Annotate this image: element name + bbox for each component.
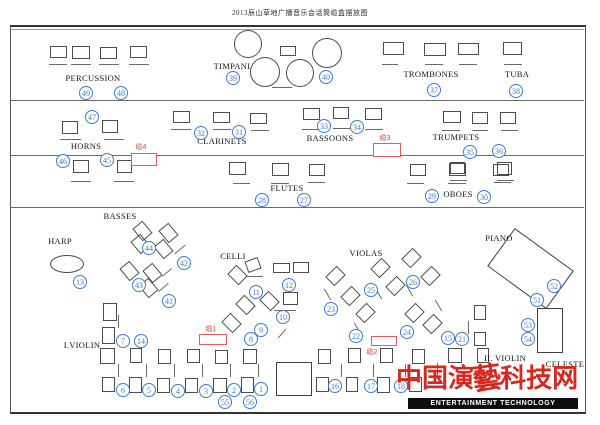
music-stand bbox=[104, 139, 124, 140]
chair bbox=[130, 348, 142, 363]
chair bbox=[158, 349, 171, 364]
chair bbox=[50, 46, 67, 58]
chair bbox=[503, 42, 522, 55]
logo-chinese-text: 中国演藝科技网 bbox=[396, 363, 584, 394]
mic-position-5: 5 bbox=[142, 383, 156, 397]
section-label-flutes: FLUTES bbox=[271, 183, 304, 193]
logo-char: 中 bbox=[396, 363, 422, 393]
section-label-i-violin: I.VIOLIN bbox=[64, 340, 101, 350]
music-stand bbox=[308, 182, 325, 183]
music-stand bbox=[258, 364, 259, 377]
mic-position-10: 10 bbox=[276, 310, 290, 324]
music-stand bbox=[60, 139, 81, 140]
mic-position-28: 28 bbox=[255, 193, 269, 207]
section-label-timpani: TIMPANI bbox=[214, 61, 251, 71]
cable-box-缆4 bbox=[131, 153, 157, 166]
mic-position-13: 13 bbox=[73, 275, 87, 289]
chair bbox=[365, 108, 382, 120]
chair bbox=[130, 46, 147, 58]
chair bbox=[449, 163, 466, 176]
section-label-horns: HORNS bbox=[71, 141, 101, 151]
section-label-basses: BASSES bbox=[104, 211, 137, 221]
chair bbox=[73, 160, 89, 173]
chair bbox=[213, 378, 227, 393]
logo-char: 科 bbox=[500, 363, 526, 393]
mic-position-44: 44 bbox=[142, 241, 156, 255]
chair bbox=[173, 111, 190, 123]
logo-char: 网 bbox=[552, 363, 578, 393]
cable-label-缆3: 缆3 bbox=[380, 133, 391, 143]
chair bbox=[185, 378, 198, 393]
mic-position-32: 32 bbox=[194, 126, 208, 140]
mic-position-6: 6 bbox=[116, 383, 130, 397]
mic-position-41: 41 bbox=[162, 294, 176, 308]
stage-row-divider bbox=[10, 207, 584, 208]
chair bbox=[472, 112, 488, 124]
mic-position-53: 53 bbox=[521, 318, 535, 332]
mic-position-21: 21 bbox=[455, 332, 469, 346]
mic-position-15: 15 bbox=[441, 331, 455, 345]
mic-position-36: 36 bbox=[492, 144, 506, 158]
section-label-violas: VIOLAS bbox=[350, 248, 383, 258]
music-stand bbox=[171, 129, 191, 130]
mic-position-27: 27 bbox=[297, 193, 311, 207]
music-stand bbox=[213, 129, 231, 130]
timpani-drum bbox=[286, 59, 314, 87]
music-stand bbox=[230, 364, 231, 377]
chair bbox=[303, 108, 320, 120]
section-label-trumpets: TRUMPETS bbox=[433, 132, 480, 142]
music-stand bbox=[459, 64, 477, 65]
chair bbox=[72, 46, 90, 59]
mic-position-52: 52 bbox=[547, 279, 561, 293]
mic-position-26: 26 bbox=[406, 275, 420, 289]
mic-position-23: 23 bbox=[324, 302, 338, 316]
mic-position-43: 43 bbox=[132, 278, 146, 292]
music-stand bbox=[472, 130, 488, 131]
conductor-podium bbox=[276, 362, 312, 396]
music-stand bbox=[425, 64, 443, 65]
mic-position-34: 34 bbox=[350, 120, 364, 134]
chair bbox=[474, 305, 486, 320]
section-label-celli: CELLI bbox=[220, 251, 246, 261]
chair bbox=[280, 46, 296, 56]
mic-position-16: 16 bbox=[328, 379, 342, 393]
chair bbox=[215, 350, 228, 364]
mic-position-37: 37 bbox=[427, 83, 441, 97]
chair bbox=[500, 112, 516, 124]
chair bbox=[62, 121, 78, 134]
chair bbox=[117, 160, 132, 173]
section-label-piano: PIANO bbox=[485, 233, 512, 243]
timpani-drum bbox=[312, 38, 342, 68]
mic-position-45: 45 bbox=[100, 153, 114, 167]
chair bbox=[103, 303, 117, 321]
section-label-trombones: TROMBONES bbox=[403, 69, 458, 79]
stage-row-divider bbox=[10, 100, 584, 101]
music-stand bbox=[118, 364, 119, 377]
chair bbox=[424, 43, 446, 56]
music-stand bbox=[407, 183, 424, 184]
music-stand bbox=[450, 180, 467, 181]
chair bbox=[241, 377, 254, 393]
mic-position-22: 22 bbox=[349, 329, 363, 343]
chair bbox=[102, 377, 115, 392]
music-stand bbox=[341, 364, 342, 377]
mic-position-46: 46 bbox=[56, 154, 70, 168]
stage-diagram: 2013辰山草地广播音乐会话筒缆盒摆放图 缆4缆3缆1缆2PERCUSSIONT… bbox=[0, 0, 600, 425]
music-stand bbox=[114, 181, 134, 182]
mic-position-30: 30 bbox=[477, 190, 491, 204]
chair bbox=[493, 164, 509, 176]
chair bbox=[187, 349, 200, 363]
mic-position-31: 31 bbox=[232, 125, 246, 139]
mic-position-25: 25 bbox=[364, 283, 378, 297]
music-stand bbox=[174, 364, 175, 377]
chair bbox=[102, 120, 118, 133]
mic-position-24: 24 bbox=[400, 325, 414, 339]
cable-box-缆1 bbox=[199, 334, 227, 345]
chair bbox=[102, 327, 115, 344]
music-stand bbox=[468, 321, 469, 334]
chair bbox=[293, 262, 309, 273]
chair bbox=[410, 164, 426, 176]
chair bbox=[100, 47, 117, 59]
chair bbox=[243, 349, 257, 364]
mic-position-40: 40 bbox=[319, 70, 333, 84]
chair bbox=[229, 162, 246, 175]
mic-position-35: 35 bbox=[463, 145, 477, 159]
chair bbox=[272, 163, 289, 176]
mic-position-7: 7 bbox=[116, 334, 130, 348]
chair bbox=[448, 348, 462, 363]
chair bbox=[377, 377, 390, 393]
mic-position-47: 47 bbox=[85, 110, 99, 124]
mic-position-12: 12 bbox=[282, 278, 296, 292]
chair bbox=[346, 377, 358, 392]
mic-position-54: 54 bbox=[521, 332, 535, 346]
music-stand bbox=[118, 315, 119, 328]
chair bbox=[443, 111, 461, 123]
cable-label-缆2: 缆2 bbox=[367, 347, 378, 357]
chair bbox=[309, 164, 325, 176]
music-stand bbox=[365, 129, 383, 130]
mic-position-2: 2 bbox=[227, 383, 241, 397]
chair bbox=[129, 377, 142, 393]
chair bbox=[283, 292, 298, 305]
diagram-title: 2013辰山草地广播音乐会话筒缆盒摆放图 bbox=[0, 8, 600, 18]
chair bbox=[380, 348, 393, 363]
mic-position-8: 8 bbox=[244, 332, 258, 346]
music-stand bbox=[251, 130, 269, 131]
music-stand bbox=[71, 64, 91, 65]
section-label-oboes: OBOES bbox=[443, 189, 472, 199]
music-stand bbox=[233, 183, 250, 184]
music-stand bbox=[146, 364, 147, 377]
music-stand bbox=[382, 64, 398, 65]
cable-label-缆1: 缆1 bbox=[206, 324, 217, 334]
mic-position-51: 51 bbox=[530, 293, 544, 307]
logo-char: 国 bbox=[422, 363, 448, 393]
section-label-tuba: TUBA bbox=[505, 69, 529, 79]
cable-label-缆4: 缆4 bbox=[136, 142, 147, 152]
music-stand bbox=[373, 364, 374, 377]
music-stand bbox=[272, 87, 292, 88]
chair bbox=[318, 349, 331, 364]
music-stand bbox=[247, 276, 263, 277]
chair bbox=[213, 112, 230, 123]
chair bbox=[458, 43, 479, 55]
chair bbox=[250, 113, 267, 124]
chair bbox=[383, 42, 404, 55]
music-stand bbox=[129, 64, 149, 65]
mic-position-55: 55 bbox=[218, 395, 232, 409]
harp-shape bbox=[50, 255, 84, 273]
timpani-drum bbox=[250, 57, 280, 87]
music-stand bbox=[71, 181, 91, 182]
mic-position-17: 17 bbox=[364, 379, 378, 393]
music-stand bbox=[442, 130, 460, 131]
music-stand bbox=[448, 183, 466, 184]
chair bbox=[412, 349, 425, 364]
music-stand bbox=[504, 64, 522, 65]
chair bbox=[157, 378, 170, 393]
chair bbox=[333, 107, 349, 119]
chair bbox=[100, 348, 115, 364]
section-label-harp: HARP bbox=[48, 236, 72, 246]
mic-position-29: 29 bbox=[425, 189, 439, 203]
music-stand bbox=[99, 64, 119, 65]
celeste-shape bbox=[537, 308, 563, 353]
music-stand bbox=[494, 182, 511, 183]
logo-char-fancy: 藝 bbox=[470, 359, 504, 398]
cable-box-缆2 bbox=[371, 336, 397, 346]
section-label-bassoons: BASSOONS bbox=[307, 133, 354, 143]
mic-position-1: 1 bbox=[254, 382, 268, 396]
chair bbox=[273, 263, 290, 273]
mic-position-49: 49 bbox=[79, 86, 93, 100]
mic-position-39: 39 bbox=[226, 71, 240, 85]
cable-box-缆3 bbox=[373, 143, 401, 157]
mic-position-48: 48 bbox=[114, 86, 128, 100]
mic-position-14: 14 bbox=[134, 334, 148, 348]
chair bbox=[348, 348, 361, 363]
timpani-drum bbox=[234, 30, 262, 58]
logo-char: 技 bbox=[526, 363, 552, 393]
music-stand bbox=[202, 364, 203, 377]
music-stand bbox=[501, 130, 518, 131]
music-stand bbox=[49, 64, 67, 65]
mic-position-11: 11 bbox=[249, 285, 263, 299]
mic-position-4: 4 bbox=[171, 384, 185, 398]
section-label-percussion: PERCUSSION bbox=[66, 73, 121, 83]
music-stand bbox=[497, 180, 514, 181]
mic-position-3: 3 bbox=[199, 384, 213, 398]
mic-position-56: 56 bbox=[243, 395, 257, 409]
mic-position-38: 38 bbox=[509, 84, 523, 98]
mic-position-42: 42 bbox=[177, 256, 191, 270]
music-stand bbox=[333, 128, 351, 129]
mic-position-33: 33 bbox=[317, 119, 331, 133]
logo-english-bar: ENTERTAINMENT TECHNOLOGY bbox=[408, 398, 578, 409]
chair bbox=[474, 332, 486, 346]
